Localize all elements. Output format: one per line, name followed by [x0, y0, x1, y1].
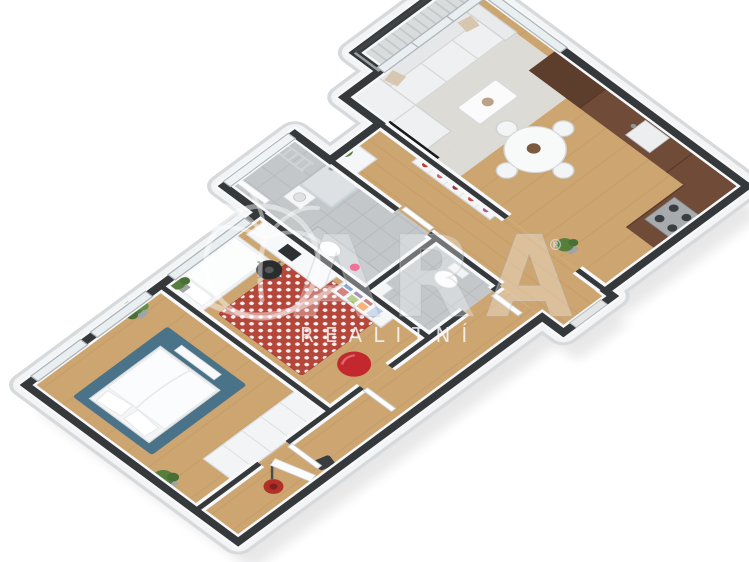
registered-mark: ® [548, 236, 563, 254]
floorplan-canvas: ARA ® REALITNÍ [0, 0, 749, 562]
floorplan-3d-render: ARA ® REALITNÍ [0, 0, 749, 562]
watermark-subtitle: REALITNÍ [300, 323, 478, 347]
